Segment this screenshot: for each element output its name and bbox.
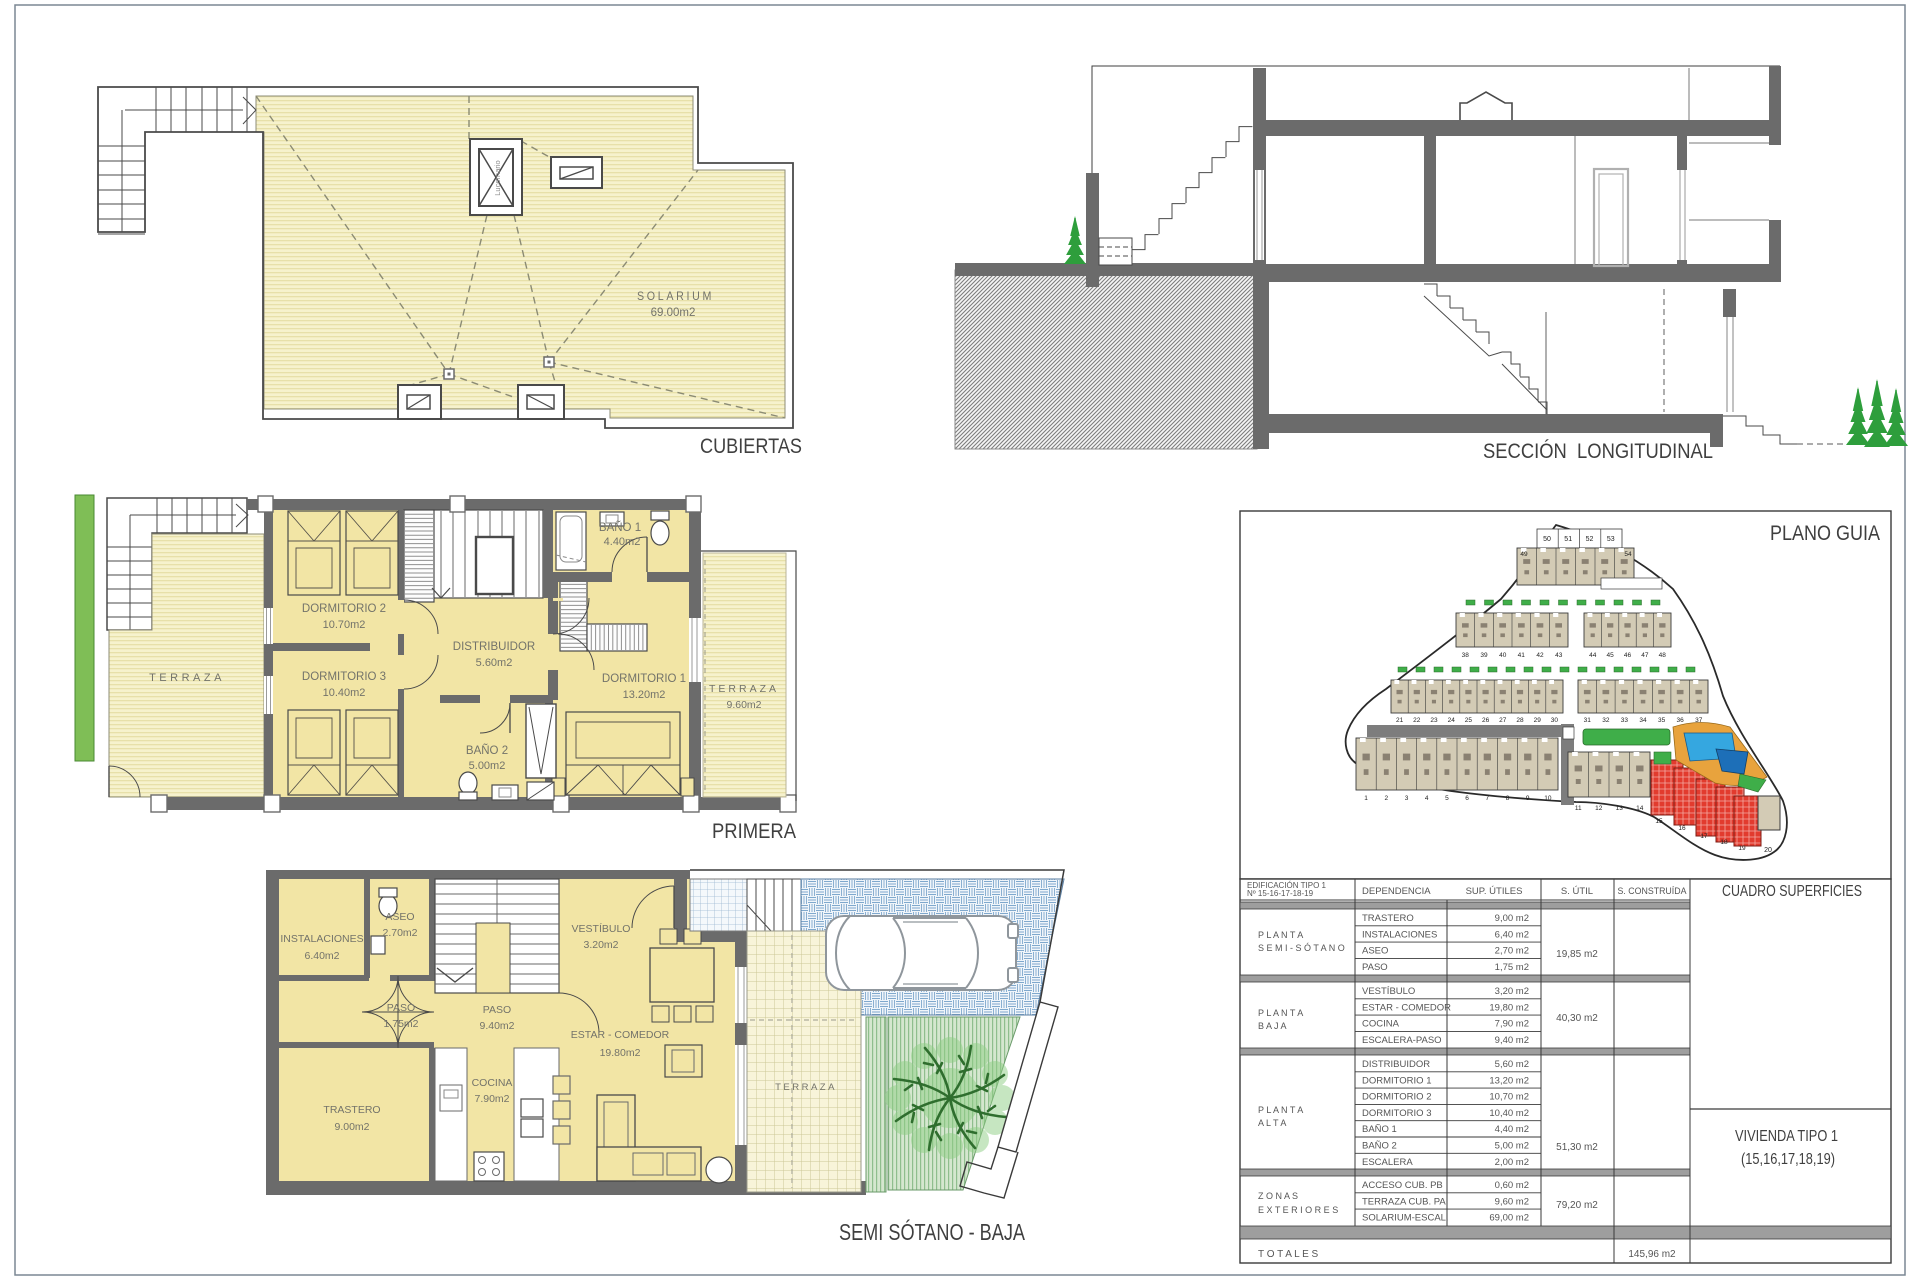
svg-text:45: 45 bbox=[1606, 652, 1614, 659]
svg-text:ACCESO CUB. PB: ACCESO CUB. PB bbox=[1362, 1180, 1443, 1191]
svg-text:145,96 m2: 145,96 m2 bbox=[1628, 1249, 1676, 1260]
svg-text:3,20 m2: 3,20 m2 bbox=[1495, 986, 1529, 997]
svg-text:13,20 m2: 13,20 m2 bbox=[1489, 1075, 1529, 1086]
svg-text:7.90m2: 7.90m2 bbox=[474, 1093, 509, 1105]
svg-text:47: 47 bbox=[1641, 652, 1649, 659]
svg-text:15: 15 bbox=[1655, 818, 1663, 825]
svg-text:P L A N T A: P L A N T A bbox=[1258, 930, 1303, 940]
svg-text:40,30 m2: 40,30 m2 bbox=[1556, 1013, 1598, 1024]
svg-text:DORMITORIO 2: DORMITORIO 2 bbox=[302, 603, 386, 615]
svg-text:13.20m2: 13.20m2 bbox=[623, 689, 666, 701]
svg-text:S. CONSTRUÍDA: S. CONSTRUÍDA bbox=[1618, 886, 1687, 896]
svg-text:19,80 m2: 19,80 m2 bbox=[1489, 1002, 1529, 1013]
svg-text:9.60m2: 9.60m2 bbox=[726, 699, 761, 711]
svg-text:SOLARIUM: SOLARIUM bbox=[637, 289, 714, 303]
svg-text:3: 3 bbox=[1405, 795, 1409, 802]
svg-text:TRASTERO: TRASTERO bbox=[323, 1104, 380, 1116]
svg-text:COCINA: COCINA bbox=[1362, 1019, 1400, 1030]
svg-text:2: 2 bbox=[1384, 795, 1388, 802]
svg-text:49: 49 bbox=[1520, 551, 1528, 558]
svg-text:5: 5 bbox=[1445, 795, 1449, 802]
svg-text:ASEO: ASEO bbox=[1362, 946, 1388, 957]
svg-text:E X T E R I O R E S: E X T E R I O R E S bbox=[1258, 1205, 1338, 1215]
svg-text:21: 21 bbox=[1396, 717, 1404, 724]
svg-text:9,60 m2: 9,60 m2 bbox=[1495, 1196, 1529, 1207]
svg-text:50: 50 bbox=[1543, 536, 1551, 543]
svg-text:PASO: PASO bbox=[483, 1004, 511, 1016]
svg-text:34: 34 bbox=[1639, 717, 1647, 724]
svg-text:48: 48 bbox=[1659, 652, 1667, 659]
svg-text:INSTALACIONES: INSTALACIONES bbox=[280, 933, 363, 945]
svg-text:10,40 m2: 10,40 m2 bbox=[1489, 1108, 1529, 1119]
svg-text:PRIMERA: PRIMERA bbox=[712, 819, 797, 843]
svg-text:CUADRO SUPERFICIES: CUADRO SUPERFICIES bbox=[1722, 883, 1862, 900]
svg-text:BAÑO 1: BAÑO 1 bbox=[599, 521, 641, 534]
svg-text:P L A N T A: P L A N T A bbox=[1258, 1105, 1303, 1115]
svg-text:19.80m2: 19.80m2 bbox=[600, 1047, 641, 1059]
svg-text:14: 14 bbox=[1636, 805, 1644, 812]
svg-text:25: 25 bbox=[1465, 717, 1473, 724]
svg-text:39: 39 bbox=[1480, 652, 1488, 659]
svg-text:VESTÍBULO: VESTÍBULO bbox=[572, 922, 631, 935]
svg-text:19,85 m2: 19,85 m2 bbox=[1556, 949, 1598, 960]
svg-text:TERRAZA: TERRAZA bbox=[775, 1082, 837, 1093]
svg-text:9,40 m2: 9,40 m2 bbox=[1495, 1035, 1529, 1046]
svg-text:2.70m2: 2.70m2 bbox=[382, 927, 417, 939]
svg-text:BAÑO 2: BAÑO 2 bbox=[466, 744, 508, 757]
svg-text:ESCALERA-PASO: ESCALERA-PASO bbox=[1362, 1035, 1442, 1046]
svg-text:DISTRIBUIDOR: DISTRIBUIDOR bbox=[1362, 1059, 1430, 1070]
svg-text:17: 17 bbox=[1700, 833, 1708, 840]
svg-text:53: 53 bbox=[1607, 536, 1615, 543]
svg-text:B A J A: B A J A bbox=[1258, 1021, 1287, 1031]
svg-text:36: 36 bbox=[1676, 717, 1684, 724]
svg-text:18: 18 bbox=[1720, 839, 1728, 846]
svg-text:27: 27 bbox=[1499, 717, 1507, 724]
svg-text:5,60 m2: 5,60 m2 bbox=[1495, 1059, 1529, 1070]
svg-text:7: 7 bbox=[1485, 795, 1489, 802]
svg-text:DORMITORIO 3: DORMITORIO 3 bbox=[1362, 1108, 1432, 1119]
svg-text:69,00 m2: 69,00 m2 bbox=[1489, 1213, 1529, 1224]
svg-text:SECCIÓN LONGITUDINAL: SECCIÓN LONGITUDINAL bbox=[1483, 438, 1713, 463]
svg-text:4: 4 bbox=[1425, 795, 1429, 802]
svg-text:VIVIENDA TIPO 1: VIVIENDA TIPO 1 bbox=[1735, 1128, 1838, 1145]
svg-text:5,00 m2: 5,00 m2 bbox=[1495, 1141, 1529, 1152]
svg-text:6,40 m2: 6,40 m2 bbox=[1495, 929, 1529, 940]
svg-text:DEPENDENCIA: DEPENDENCIA bbox=[1362, 886, 1431, 897]
svg-text:46: 46 bbox=[1624, 652, 1632, 659]
svg-text:12: 12 bbox=[1595, 805, 1603, 812]
svg-text:SOLARIUM-ESCAL.: SOLARIUM-ESCAL. bbox=[1362, 1213, 1449, 1224]
svg-text:TERRAZA CUB. PA: TERRAZA CUB. PA bbox=[1362, 1196, 1446, 1207]
svg-text:30: 30 bbox=[1551, 717, 1559, 724]
svg-text:51,30 m2: 51,30 m2 bbox=[1556, 1142, 1598, 1153]
svg-text:Z O N A S: Z O N A S bbox=[1258, 1191, 1298, 1201]
svg-text:44: 44 bbox=[1589, 652, 1597, 659]
svg-text:26: 26 bbox=[1482, 717, 1490, 724]
svg-text:BAÑO 1: BAÑO 1 bbox=[1362, 1124, 1397, 1135]
svg-text:23: 23 bbox=[1430, 717, 1438, 724]
svg-text:2,00 m2: 2,00 m2 bbox=[1495, 1157, 1529, 1168]
svg-text:24: 24 bbox=[1448, 717, 1456, 724]
svg-text:43: 43 bbox=[1555, 652, 1563, 659]
svg-text:10.40m2: 10.40m2 bbox=[323, 687, 366, 699]
svg-text:ESCALERA: ESCALERA bbox=[1362, 1157, 1413, 1168]
svg-text:13: 13 bbox=[1616, 805, 1624, 812]
svg-text:(15,16,17,18,19): (15,16,17,18,19) bbox=[1741, 1151, 1835, 1168]
svg-text:3.20m2: 3.20m2 bbox=[583, 939, 618, 951]
svg-text:Nº 15-16-17-18-19: Nº 15-16-17-18-19 bbox=[1247, 889, 1314, 898]
svg-text:DORMITORIO 3: DORMITORIO 3 bbox=[302, 671, 386, 683]
svg-text:PASO: PASO bbox=[1362, 962, 1388, 973]
svg-text:7,90 m2: 7,90 m2 bbox=[1495, 1019, 1529, 1030]
svg-text:42: 42 bbox=[1536, 652, 1544, 659]
svg-text:4,40 m2: 4,40 m2 bbox=[1495, 1124, 1529, 1135]
svg-text:8: 8 bbox=[1506, 795, 1510, 802]
svg-text:9,00 m2: 9,00 m2 bbox=[1495, 913, 1529, 924]
svg-text:10,70 m2: 10,70 m2 bbox=[1489, 1092, 1529, 1103]
svg-text:TRASTERO: TRASTERO bbox=[1362, 913, 1414, 924]
svg-text:9.00m2: 9.00m2 bbox=[334, 1121, 369, 1133]
svg-text:52: 52 bbox=[1586, 536, 1594, 543]
svg-text:INSTALACIONES: INSTALACIONES bbox=[1362, 929, 1437, 940]
svg-text:79,20 m2: 79,20 m2 bbox=[1556, 1200, 1598, 1211]
svg-text:PASO: PASO bbox=[387, 1002, 415, 1014]
svg-text:DORMITORIO 1: DORMITORIO 1 bbox=[602, 673, 686, 685]
svg-text:ASEO: ASEO bbox=[385, 911, 414, 923]
svg-text:9.40m2: 9.40m2 bbox=[479, 1020, 514, 1032]
svg-text:DISTRIBUIDOR: DISTRIBUIDOR bbox=[453, 641, 535, 653]
svg-text:2,70 m2: 2,70 m2 bbox=[1495, 946, 1529, 957]
svg-text:10.70m2: 10.70m2 bbox=[323, 619, 366, 631]
svg-text:41: 41 bbox=[1518, 652, 1526, 659]
svg-text:DORMITORIO 2: DORMITORIO 2 bbox=[1362, 1092, 1432, 1103]
svg-text:A L T A: A L T A bbox=[1258, 1118, 1286, 1128]
svg-text:1.75m2: 1.75m2 bbox=[383, 1018, 418, 1030]
svg-text:COCINA: COCINA bbox=[472, 1077, 513, 1089]
svg-text:TERRAZA: TERRAZA bbox=[149, 672, 225, 684]
svg-text:5.00m2: 5.00m2 bbox=[469, 760, 506, 772]
svg-text:32: 32 bbox=[1602, 717, 1610, 724]
svg-text:6: 6 bbox=[1465, 795, 1469, 802]
svg-text:4.40m2: 4.40m2 bbox=[604, 536, 641, 548]
svg-text:9: 9 bbox=[1526, 795, 1530, 802]
svg-text:5.60m2: 5.60m2 bbox=[476, 657, 513, 669]
svg-text:38: 38 bbox=[1462, 652, 1470, 659]
svg-text:SUP. ÚTILES: SUP. ÚTILES bbox=[1466, 886, 1523, 897]
svg-text:S. ÚTIL: S. ÚTIL bbox=[1561, 886, 1593, 897]
svg-text:DORMITORIO 1: DORMITORIO 1 bbox=[1362, 1075, 1432, 1086]
svg-text:BAÑO 2: BAÑO 2 bbox=[1362, 1141, 1397, 1152]
svg-text:33: 33 bbox=[1621, 717, 1629, 724]
svg-text:22: 22 bbox=[1413, 717, 1421, 724]
svg-text:35: 35 bbox=[1658, 717, 1666, 724]
svg-text:0,60 m2: 0,60 m2 bbox=[1495, 1180, 1529, 1191]
svg-text:S E M I - S Ó T A N O: S E M I - S Ó T A N O bbox=[1258, 943, 1345, 953]
svg-text:31: 31 bbox=[1584, 717, 1592, 724]
svg-text:6.40m2: 6.40m2 bbox=[304, 950, 339, 962]
svg-text:VESTÍBULO: VESTÍBULO bbox=[1362, 986, 1415, 997]
svg-text:ESTAR - COMEDOR: ESTAR - COMEDOR bbox=[1362, 1002, 1451, 1013]
svg-text:TERRAZA: TERRAZA bbox=[709, 683, 779, 695]
svg-text:10: 10 bbox=[1544, 795, 1552, 802]
svg-text:1: 1 bbox=[1364, 795, 1368, 802]
svg-text:54: 54 bbox=[1624, 551, 1632, 558]
svg-text:11: 11 bbox=[1575, 805, 1582, 812]
svg-text:40: 40 bbox=[1499, 652, 1507, 659]
svg-text:1,75 m2: 1,75 m2 bbox=[1495, 962, 1529, 973]
svg-text:19: 19 bbox=[1738, 845, 1746, 852]
svg-text:20: 20 bbox=[1764, 847, 1772, 854]
svg-text:T O T A L E S: T O T A L E S bbox=[1258, 1249, 1319, 1260]
svg-text:PLANO GUIA: PLANO GUIA bbox=[1770, 522, 1880, 545]
svg-text:69.00m2: 69.00m2 bbox=[651, 307, 696, 319]
svg-text:P L A N T A: P L A N T A bbox=[1258, 1008, 1303, 1018]
svg-text:51: 51 bbox=[1564, 536, 1572, 543]
svg-text:28: 28 bbox=[1516, 717, 1524, 724]
svg-text:CUBIERTAS: CUBIERTAS bbox=[700, 434, 802, 458]
svg-text:SEMI SÓTANO - BAJA: SEMI SÓTANO - BAJA bbox=[839, 1219, 1026, 1245]
svg-text:16: 16 bbox=[1678, 825, 1686, 832]
svg-text:Lucernario: Lucernario bbox=[493, 160, 502, 195]
svg-text:29: 29 bbox=[1534, 717, 1542, 724]
svg-text:ESTAR - COMEDOR: ESTAR - COMEDOR bbox=[571, 1029, 670, 1041]
